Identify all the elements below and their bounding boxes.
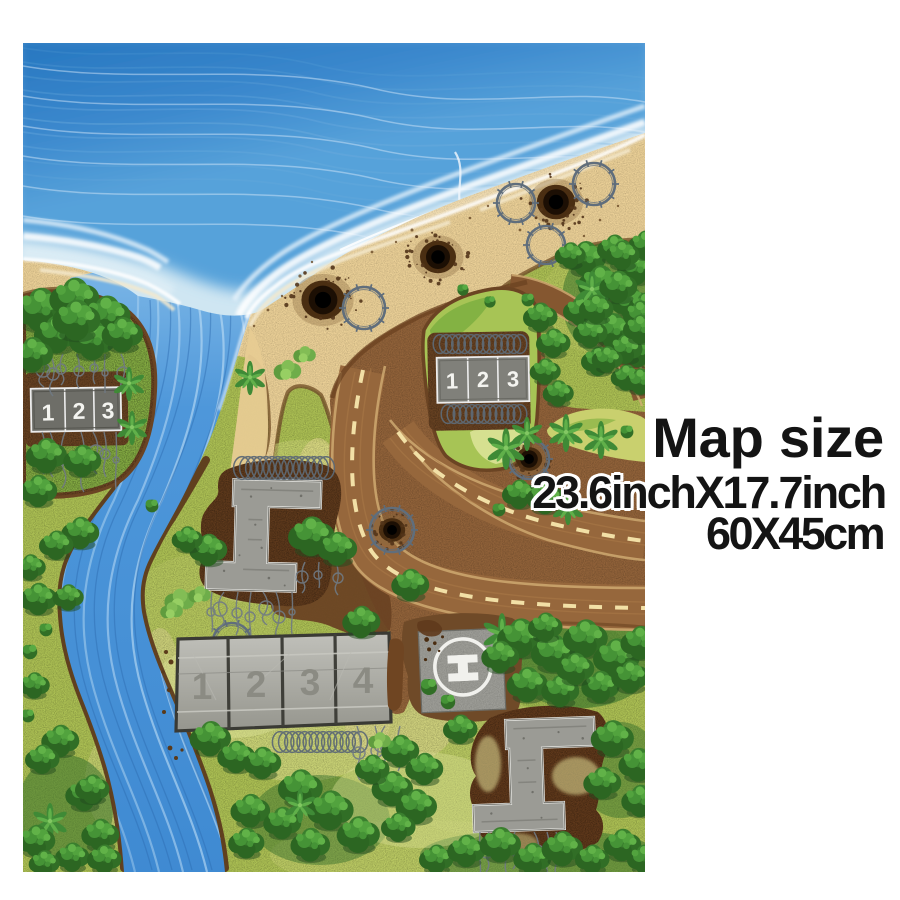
svg-text:1: 1 [41,399,54,425]
svg-text:3: 3 [101,397,114,423]
svg-text:1: 1 [192,666,213,707]
svg-text:3: 3 [300,662,321,703]
svg-text:4: 4 [353,660,374,701]
svg-text:2: 2 [72,398,85,424]
svg-text:1: 1 [446,368,459,393]
svg-text:2: 2 [246,664,267,705]
svg-text:3: 3 [507,366,520,391]
svg-text:2: 2 [477,367,490,392]
